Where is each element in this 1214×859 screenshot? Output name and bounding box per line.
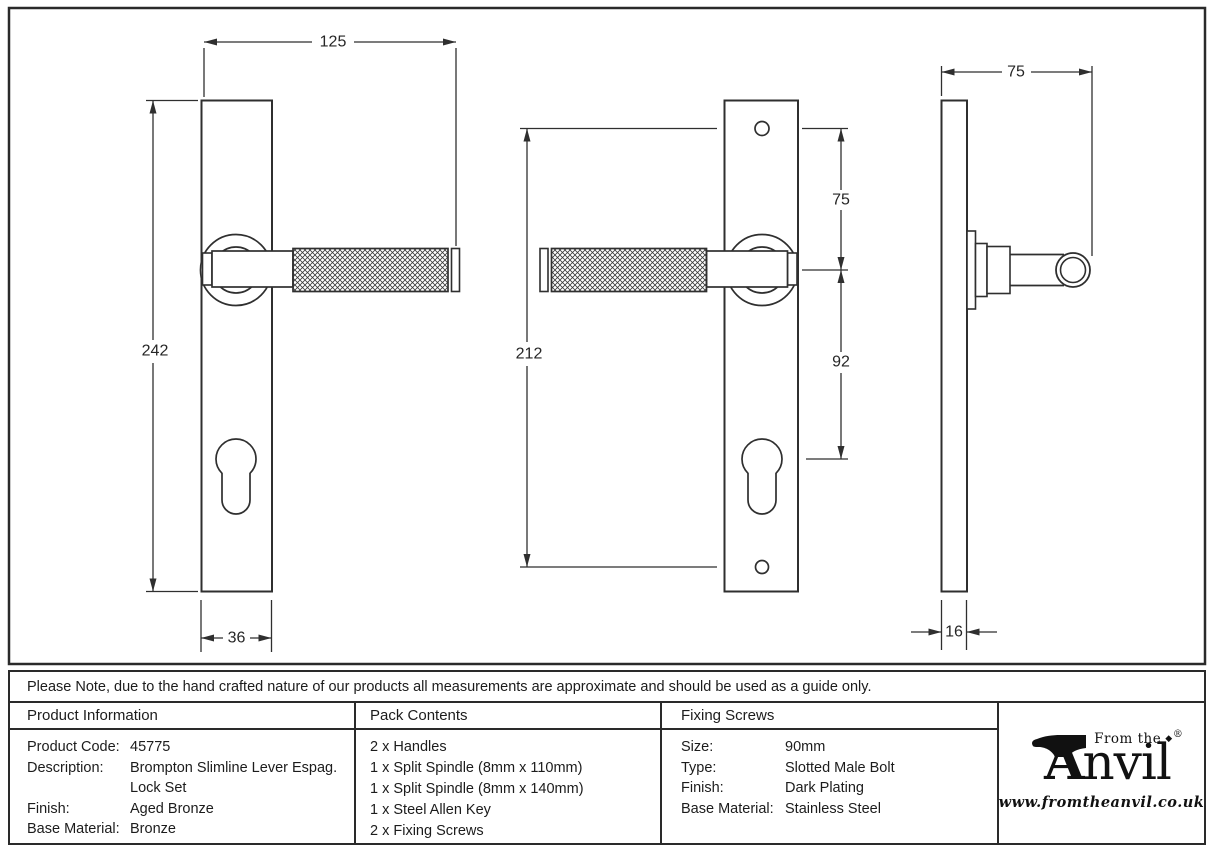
backplate	[202, 101, 273, 592]
info-table: Product Information Product Code: 45775 …	[8, 703, 1206, 845]
row-label: Type:	[681, 758, 785, 779]
pack-item: 2 x Fixing Screws	[370, 821, 656, 842]
registered-mark: ®	[1173, 730, 1183, 740]
table-row: Type: Slotted Male Bolt	[681, 758, 993, 779]
diamond-icon: ◆	[1161, 734, 1172, 744]
pack-item: 1 x Steel Allen Key	[370, 800, 656, 821]
dim-label-overall-width: 125	[320, 34, 347, 51]
row-value: Slotted Male Bolt	[785, 758, 895, 779]
row-label: Size:	[681, 737, 785, 758]
from-the-label: From the	[1094, 731, 1161, 747]
dim-label-plate-height: 242	[142, 343, 169, 360]
product-information-body: Product Code: 45775 Description: Brompto…	[10, 730, 354, 840]
fixing-screws-column: Fixing Screws Size: 90mm Type: Slotted M…	[662, 703, 999, 843]
dim-label-projection: 75	[1007, 64, 1025, 81]
brand-cell: Anvil From the◆ ® www.fromtheanvil.co.uk	[999, 703, 1204, 843]
product-information-column: Product Information Product Code: 45775 …	[10, 703, 356, 843]
row-value: 45775	[130, 737, 170, 758]
arrow-down	[838, 257, 845, 270]
table-row: Description: Brompton Slimline Lever Esp…	[27, 758, 350, 799]
anvil-icon	[1030, 733, 1088, 757]
arrow-right	[929, 629, 942, 636]
note-text: Please Note, due to the hand crafted nat…	[27, 679, 871, 695]
arrow-down	[150, 579, 157, 592]
pack-item: 1 x Split Spindle (8mm x 110mm)	[370, 758, 656, 779]
dim-handle-to-cylinder: 92	[806, 270, 850, 459]
arrow-down	[524, 554, 531, 567]
euro-cylinder-keyhole	[216, 439, 256, 514]
lever-end-cap	[540, 249, 548, 292]
dim-plate-thickness: 16	[911, 600, 997, 650]
arrow-left	[201, 635, 214, 642]
side-view	[942, 101, 1091, 592]
lever-neck	[707, 251, 788, 287]
row-value: Brompton Slimline Lever Espag. Lock Set	[130, 758, 337, 799]
arrow-up	[838, 129, 845, 142]
dim-plate-width: 36	[201, 600, 272, 652]
arrow-right	[443, 39, 456, 46]
front-view-handle-left	[540, 101, 798, 592]
pack-contents-body: 2 x Handles 1 x Split Spindle (8mm x 110…	[356, 730, 660, 842]
table-row: Base Material: Stainless Steel	[681, 799, 993, 820]
arrow-up	[524, 129, 531, 142]
fixing-screws-body: Size: 90mm Type: Slotted Male Bolt Finis…	[662, 730, 997, 819]
product-drawing-sheet: 125 242 36	[0, 0, 1214, 859]
dim-label-top-to-handle: 75	[832, 192, 850, 209]
arrow-left	[942, 69, 955, 76]
pack-contents-header: Pack Contents	[356, 703, 660, 730]
row-value: Stainless Steel	[785, 799, 881, 820]
dim-label-handle-to-cylinder: 92	[832, 354, 850, 371]
row-label: Base Material:	[681, 799, 785, 820]
row-value-line1: Brompton Slimline Lever Espag.	[130, 758, 337, 779]
row-label: Finish:	[681, 778, 785, 799]
fixing-screws-header: Fixing Screws	[662, 703, 997, 730]
dim-label-plate-width: 36	[228, 630, 246, 647]
table-row: Product Code: 45775	[27, 737, 350, 758]
technical-drawing: 125 242 36	[0, 0, 1214, 667]
from-the-text: From the◆	[1094, 732, 1173, 746]
column-title: Pack Contents	[370, 707, 468, 724]
dim-screw-centres: 212	[516, 129, 717, 568]
lever-knurled-grip	[293, 249, 448, 292]
arrow-down	[838, 446, 845, 459]
dim-top-to-handle: 75	[802, 129, 850, 271]
neck-edge	[987, 247, 1010, 294]
collar-edge	[976, 244, 988, 297]
dim-label-plate-thickness: 16	[945, 624, 963, 641]
spindle-collar	[788, 253, 798, 285]
row-value: Dark Plating	[785, 778, 864, 799]
row-value: Aged Bronze	[130, 799, 214, 820]
spindle-collar	[203, 253, 213, 285]
table-row: Finish: Aged Bronze	[27, 799, 350, 820]
table-row: Base Material: Bronze	[27, 819, 350, 840]
dim-plate-height: 242	[142, 101, 198, 592]
drawing-border	[9, 8, 1205, 664]
row-label: Description:	[27, 758, 130, 799]
front-view-handle-right	[201, 101, 460, 592]
column-title: Product Information	[27, 707, 158, 724]
backplate	[725, 101, 799, 592]
pack-contents-column: Pack Contents 2 x Handles 1 x Split Spin…	[356, 703, 662, 843]
arrow-up	[838, 270, 845, 283]
pack-item: 2 x Handles	[370, 737, 656, 758]
table-row: Finish: Dark Plating	[681, 778, 993, 799]
lever-knurled-grip	[552, 249, 707, 292]
euro-cylinder-keyhole	[742, 439, 782, 514]
row-label: Product Code:	[27, 737, 130, 758]
measurement-note: Please Note, due to the hand crafted nat…	[8, 670, 1206, 703]
brand-website: www.fromtheanvil.co.uk	[999, 794, 1205, 811]
table-row: Size: 90mm	[681, 737, 993, 758]
dim-label-screw-centres: 212	[516, 346, 543, 363]
row-value: 90mm	[785, 737, 825, 758]
row-value: Bronze	[130, 819, 176, 840]
arrow-right	[1079, 69, 1092, 76]
row-value-line2: Lock Set	[130, 778, 337, 799]
row-label: Finish:	[27, 799, 130, 820]
column-title: Fixing Screws	[681, 707, 774, 724]
product-information-header: Product Information	[10, 703, 354, 730]
grip-end-inner	[1061, 258, 1086, 283]
anvil-wordmark: Anvil From the◆ ®	[1032, 736, 1171, 792]
lever-end-cap	[452, 249, 460, 292]
arrow-up	[150, 101, 157, 114]
backplate-edge	[942, 101, 968, 592]
brand-logo: Anvil From the◆ ® www.fromtheanvil.co.uk	[999, 703, 1204, 843]
pack-item: 1 x Split Spindle (8mm x 140mm)	[370, 779, 656, 800]
rose-edge	[967, 231, 976, 309]
arrow-left	[204, 39, 217, 46]
row-label: Base Material:	[27, 819, 130, 840]
arrow-right	[259, 635, 272, 642]
lever-neck	[212, 251, 293, 287]
arrow-left	[967, 629, 980, 636]
